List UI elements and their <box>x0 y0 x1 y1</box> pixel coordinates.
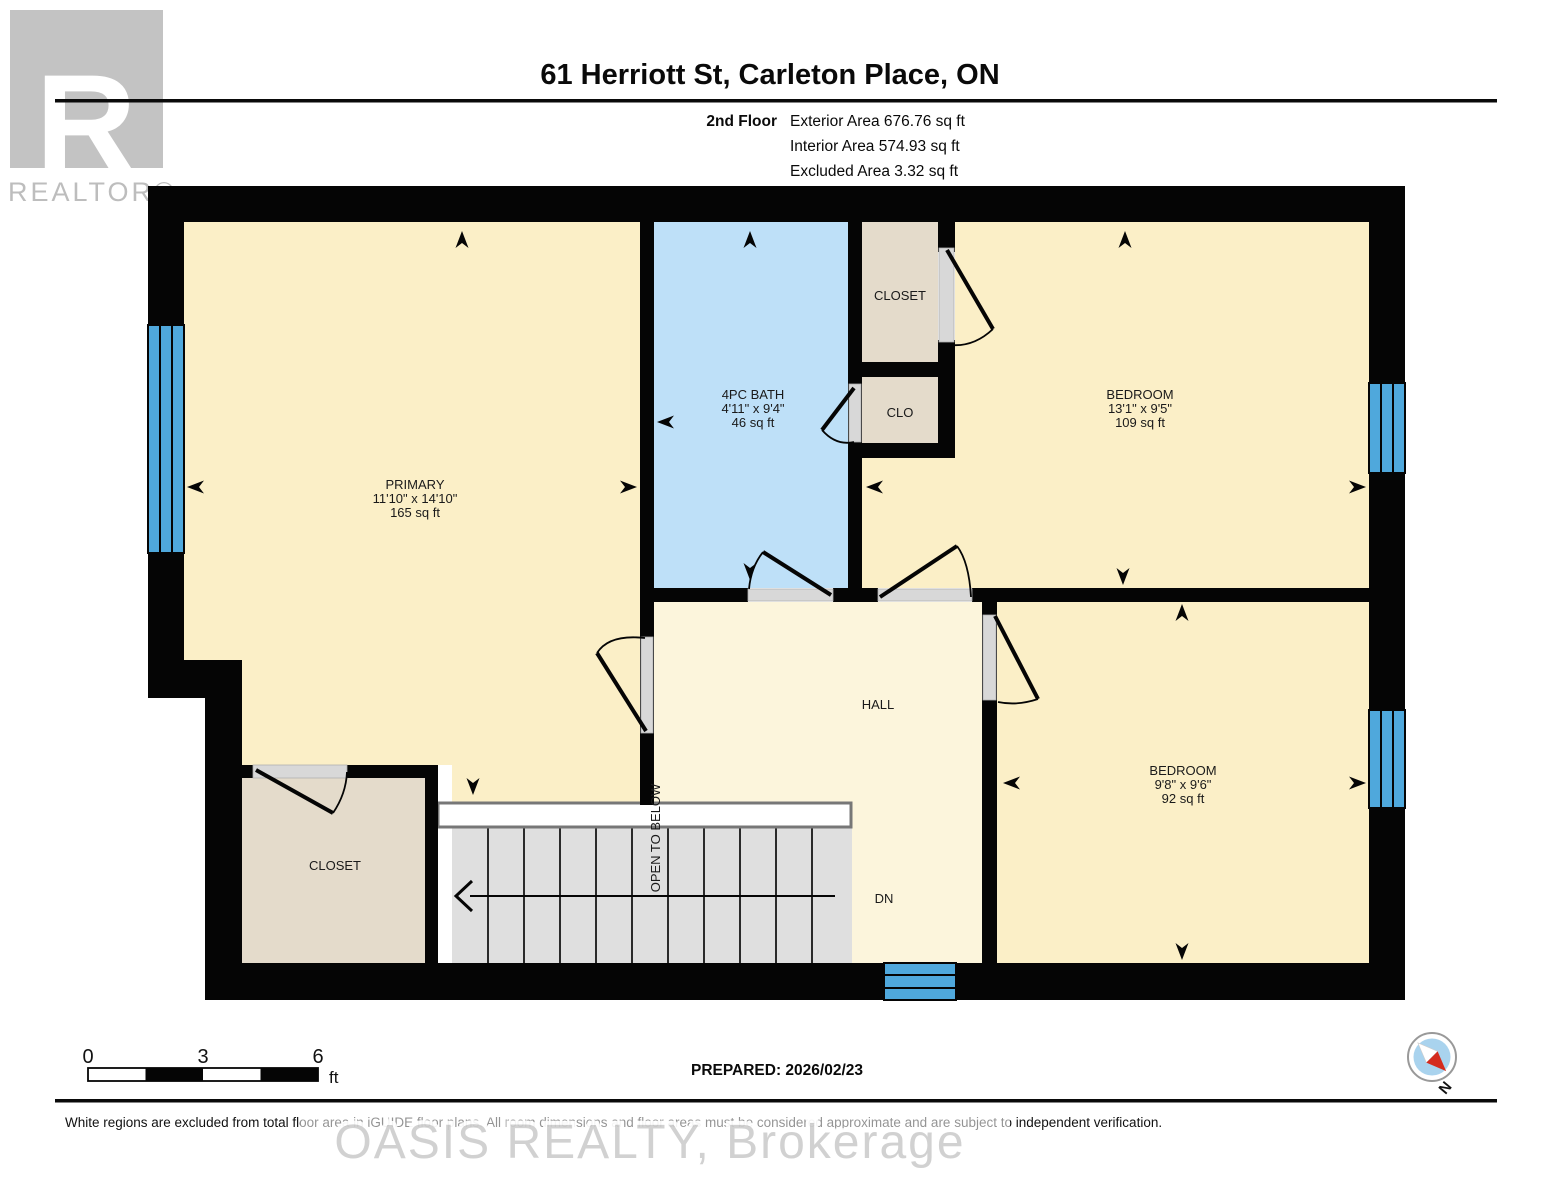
primary-dims: 11'10" x 14'10" <box>373 491 458 506</box>
wall-bath-bottom-left <box>640 588 748 602</box>
bedroom1-area: 109 sq ft <box>1115 415 1165 430</box>
wall-left-step <box>148 660 242 698</box>
scale-bar-seg2 <box>261 1068 319 1081</box>
bath-area: 46 sq ft <box>732 415 775 430</box>
floor-label: 2nd Floor <box>706 113 777 130</box>
window-hall-bottom <box>884 963 956 1000</box>
scale-bar: 0 3 6 ft <box>82 1046 338 1087</box>
bedroom1-name: BEDROOM <box>1106 387 1173 402</box>
closet-top-name: CLOSET <box>874 288 926 303</box>
wall-clo-bottom <box>848 443 955 458</box>
bath-dims: 4'11" x 9'4" <box>721 401 784 416</box>
scale-tick-6: 6 <box>312 1046 323 1068</box>
floor-plan-canvas: R REALTOR® 61 Herriott St, Carleton Plac… <box>0 0 1553 1200</box>
compass: N <box>1408 1033 1456 1098</box>
wall-bottom <box>205 963 1405 1000</box>
bedroom2-dims: 9'8" x 9'6" <box>1155 777 1212 792</box>
bedroom1-dims: 13'1" x 9'5" <box>1108 401 1172 416</box>
window-bedroom1-right <box>1369 383 1405 473</box>
primary-name: PRIMARY <box>386 477 445 492</box>
bedroom2-name: BEDROOM <box>1149 763 1216 778</box>
scale-bar-seg1 <box>146 1068 204 1081</box>
window-primary-left <box>148 325 184 553</box>
scale-unit-label: ft <box>329 1068 339 1087</box>
bath-name: 4PC BATH <box>722 387 785 402</box>
bedroom2-area: 92 sq ft <box>1162 791 1205 806</box>
window-bedroom2-right <box>1369 710 1405 808</box>
hall-name: HALL <box>862 697 895 712</box>
scale-tick-3: 3 <box>197 1046 208 1068</box>
wall-left-lower <box>205 698 242 1000</box>
brokerage-watermark: OASIS REALTY, Brokerage <box>334 1116 965 1169</box>
excluded-area-label: Excluded Area 3.32 sq ft <box>790 163 959 180</box>
page-title: 61 Herriott St, Carleton Place, ON <box>540 59 999 91</box>
interior-area-label: Interior Area 574.93 sq ft <box>790 138 960 155</box>
open-to-below-rail <box>438 803 851 827</box>
primary-area: 165 sq ft <box>390 505 440 520</box>
closet-bottom-name: CLOSET <box>309 858 361 873</box>
wall-closet-bottom-right <box>425 765 438 963</box>
wall-bedroom1-bottom <box>972 588 1369 602</box>
excluded-white-strip <box>438 765 452 963</box>
header-rule <box>55 99 1497 103</box>
wall-closet-top-right-a <box>938 222 955 252</box>
realtor-logo: R REALTOR® <box>8 10 177 207</box>
wall-right <box>1369 186 1405 1000</box>
compass-north-label: N <box>1436 1078 1456 1097</box>
prepared-date-label: PREPARED: 2026/02/23 <box>691 1062 863 1079</box>
wall-bath-bottom-mid <box>833 588 878 602</box>
stairs-dn-label: DN <box>875 891 894 906</box>
scale-tick-0: 0 <box>82 1046 93 1068</box>
footer-rule <box>55 1099 1497 1103</box>
floor-plan-page: R REALTOR® 61 Herriott St, Carleton Plac… <box>0 0 1553 1200</box>
wall-top <box>148 186 1405 222</box>
wall-clo-right <box>938 377 955 443</box>
clo-name: CLO <box>887 405 914 420</box>
open-to-below-label: OPEN TO BELOW <box>648 783 663 892</box>
exterior-area-label: Exterior Area 676.76 sq ft <box>790 113 966 130</box>
